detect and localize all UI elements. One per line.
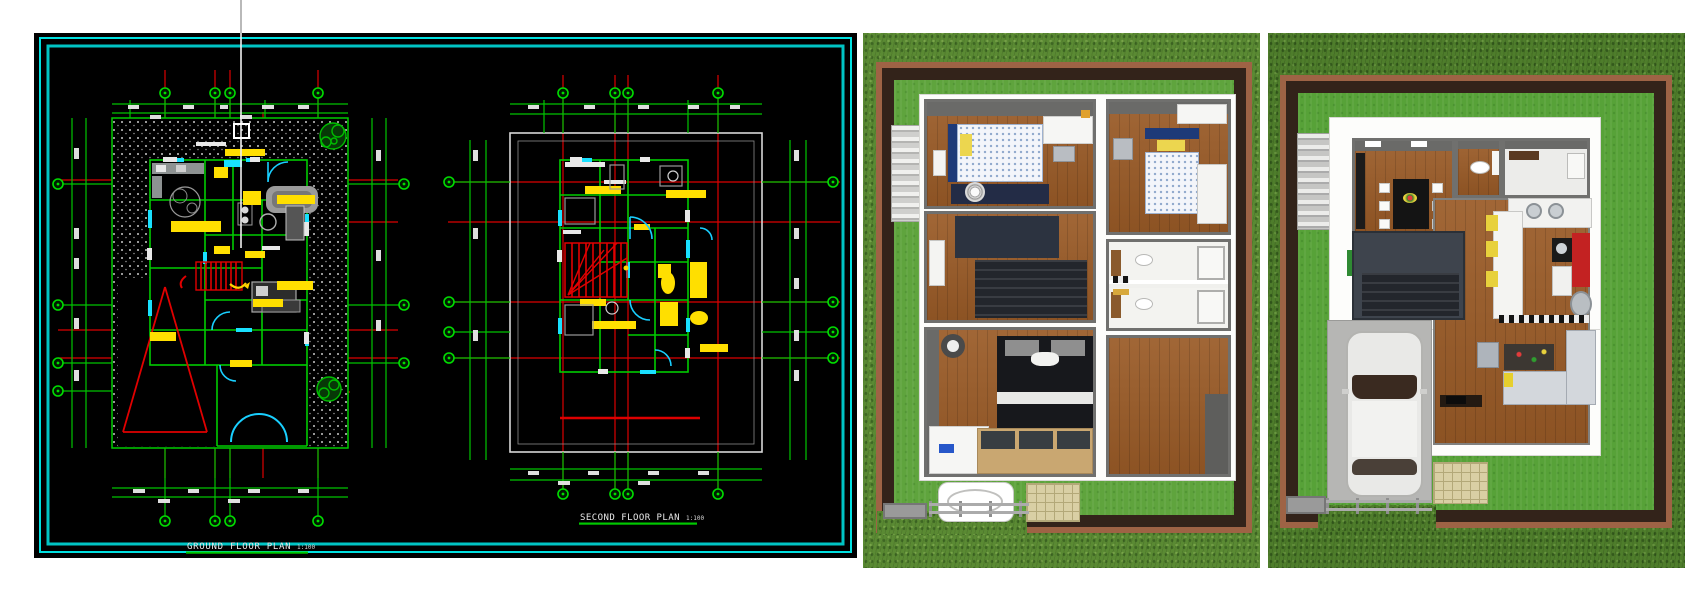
laptop: [939, 444, 954, 453]
chair: [1432, 183, 1443, 193]
bed-headboard: [1145, 128, 1199, 139]
bedroom-2: [1106, 99, 1231, 235]
table-centerpiece: [1403, 193, 1417, 203]
sofa-chaise: [1566, 330, 1596, 405]
paver-slab: [1286, 496, 1326, 514]
desk-lamp: [1081, 110, 1090, 118]
driveway-rails: [1326, 498, 1432, 514]
render-ground-floor-panel: [1268, 33, 1685, 568]
driveway-rails: [929, 501, 1029, 517]
tv-screen: [1446, 396, 1466, 404]
cad-drawing-panel: GROUND FLOOR PLAN 1:100 SECOND FLOOR PLA…: [34, 33, 857, 558]
exterior-stair: [891, 125, 920, 222]
car-mirror-left: [1342, 389, 1349, 394]
laundry-room: [1502, 138, 1590, 198]
vanity: [1111, 250, 1121, 276]
appliance: [1567, 153, 1585, 179]
island-yellow-stool: [1486, 241, 1498, 257]
towel-rail: [1113, 289, 1129, 295]
bed-tray: [1031, 352, 1059, 366]
dishwasher: [1552, 266, 1572, 296]
cooking-pot: [1526, 203, 1542, 219]
shelf: [1509, 151, 1539, 160]
kitchen-pass-strip: [1499, 315, 1589, 323]
red-cabinet: [1572, 233, 1590, 287]
car-rear-window: [1352, 459, 1417, 475]
wall-top: [927, 102, 1093, 116]
exterior-stair: [1297, 133, 1332, 230]
chair: [1053, 146, 1075, 162]
water-drum: [1570, 291, 1592, 317]
nightstand: [933, 150, 946, 176]
car-roof: [1352, 401, 1417, 457]
second-floor-title: SECOND FLOOR PLAN: [580, 513, 680, 523]
ground-floor-title: GROUND FLOOR PLAN: [187, 542, 291, 552]
toilet: [1470, 161, 1490, 174]
roof-edge-shadow: [1205, 394, 1228, 474]
ground-floor-scale: 1:100: [297, 544, 315, 551]
desk: [1177, 104, 1227, 124]
chair: [1379, 219, 1390, 229]
cooking-pot: [1548, 203, 1564, 219]
render-second-floor-panel: [863, 33, 1260, 568]
closet: [1197, 164, 1227, 224]
car-mirror-right: [1420, 389, 1427, 394]
desk: [1043, 116, 1093, 144]
dresser: [929, 240, 945, 286]
car: [1346, 331, 1423, 497]
wall-top: [1505, 141, 1587, 149]
ceiling-fan-hub: [947, 340, 959, 352]
chair: [1113, 138, 1133, 160]
island-yellow-stool: [1486, 215, 1498, 231]
bed-blanket-fold: [997, 392, 1093, 404]
dining-table: [1393, 179, 1429, 229]
bed-quilt: [1145, 152, 1199, 214]
vanity: [1111, 292, 1121, 318]
toilet: [1135, 254, 1153, 266]
wall-top: [1458, 141, 1499, 149]
sink-counter: [1492, 151, 1499, 175]
skylight-panel: [981, 431, 1015, 449]
stair-treads: [1362, 273, 1459, 316]
pillow: [1157, 140, 1185, 151]
bathtub: [1197, 290, 1225, 324]
master-bedroom: [924, 327, 1096, 477]
green-door: [1347, 250, 1352, 276]
skylight-panel: [1019, 431, 1053, 449]
round-rug: [965, 182, 985, 202]
window-sill: [1365, 141, 1381, 147]
tile-walkway: [1026, 483, 1080, 522]
play-rug: [1504, 344, 1554, 370]
stairwell: [975, 260, 1087, 318]
car-windshield: [1352, 375, 1417, 399]
second-floor-scale: 1:100: [686, 515, 704, 522]
cad-plan-ground: [112, 118, 348, 448]
house-second-floor: [920, 95, 1235, 480]
bathtub: [1197, 246, 1225, 280]
window-sill: [1411, 141, 1427, 147]
wardrobe-room: [924, 211, 1096, 323]
island-yellow-stool: [1486, 271, 1498, 287]
stairwell: [1352, 231, 1465, 320]
paver-slab: [883, 503, 927, 519]
crosshair-margin-line: [240, 0, 242, 33]
toilet: [1135, 298, 1153, 310]
wardrobe: [955, 216, 1059, 258]
stove-burner: [1556, 243, 1567, 254]
hall-room: [1106, 335, 1231, 477]
armchair: [1477, 342, 1499, 368]
tile-walkway: [1433, 462, 1488, 504]
pillow: [960, 134, 972, 156]
chair: [1379, 183, 1390, 193]
cad-canvas[interactable]: GROUND FLOOR PLAN 1:100 SECOND FLOOR PLA…: [34, 33, 857, 558]
bathrooms: [1106, 239, 1231, 331]
skylight-panel: [1057, 431, 1090, 449]
chair: [1379, 201, 1390, 211]
bedroom-1: [924, 99, 1096, 209]
bath-mat: [1113, 276, 1129, 283]
powder-room: [1455, 138, 1502, 198]
shelf-unit: [1356, 153, 1365, 229]
bed-headboard: [948, 124, 957, 182]
yellow-cushion: [1504, 373, 1513, 387]
composite-image: GROUND FLOOR PLAN 1:100 SECOND FLOOR PLA…: [0, 0, 1700, 600]
